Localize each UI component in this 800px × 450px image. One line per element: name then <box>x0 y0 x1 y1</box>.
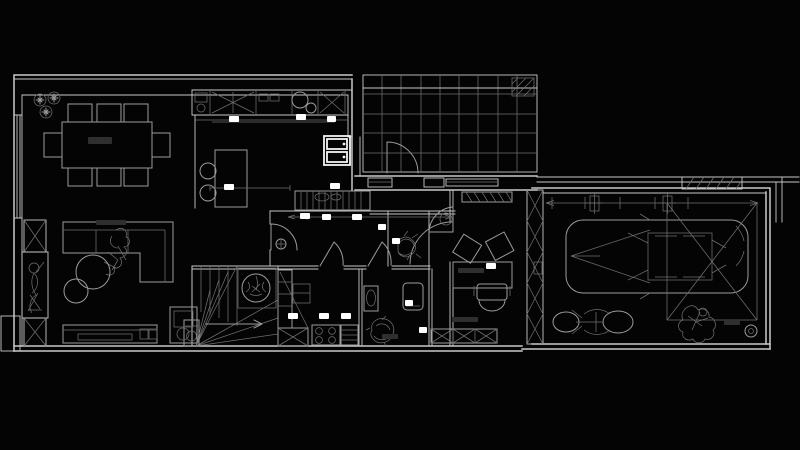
garage <box>532 177 770 349</box>
wardrobe-with-figure <box>22 252 48 318</box>
shelf-x-unit <box>278 328 308 346</box>
utility-room <box>278 270 358 346</box>
dining-table <box>62 122 152 168</box>
door-utility <box>320 242 343 266</box>
wc <box>398 207 453 260</box>
garage-window-hatched <box>682 177 742 189</box>
roof-overhang-lines <box>537 177 799 222</box>
cross-marked-zone <box>667 203 757 320</box>
cushion-right <box>485 232 513 260</box>
dining-area <box>34 92 170 186</box>
interior-walls <box>192 190 455 346</box>
sofa <box>63 222 173 282</box>
floor-plan-canvas <box>0 0 800 450</box>
wc-toilet-sketch <box>398 231 421 260</box>
living-room <box>22 220 197 346</box>
window-left <box>14 115 22 218</box>
radiator-bottom <box>431 329 497 343</box>
kitchen <box>192 90 370 210</box>
shower-tray <box>403 283 423 310</box>
hatched-corner <box>512 78 534 96</box>
toilet-sketch <box>366 316 394 346</box>
floor-drain <box>745 325 757 337</box>
staircase <box>184 266 278 346</box>
garage-figure-sketch <box>679 306 716 343</box>
insulated-wall-strip <box>527 190 543 344</box>
stove-icon <box>312 325 340 345</box>
radiator-top <box>462 192 512 202</box>
wall-column-lower <box>24 318 46 346</box>
cushion-left <box>453 234 482 263</box>
dining-chairs <box>44 104 170 186</box>
terrace-door <box>387 142 418 173</box>
tv-console <box>63 325 157 343</box>
terrace-grid <box>363 75 537 172</box>
garage-dimension-arrows <box>546 192 758 214</box>
kitchen-island <box>200 150 247 207</box>
bathroom <box>364 283 423 346</box>
coffee-tables <box>64 255 110 303</box>
sofa-figure-sketch <box>104 228 130 275</box>
stair-plant-icon <box>242 274 270 302</box>
kitchen-dimension-line <box>210 122 335 191</box>
drawer-counter <box>295 191 370 210</box>
floor-plan-drawing <box>0 0 800 450</box>
hall-dimension-line <box>288 214 452 220</box>
terrace <box>363 75 537 173</box>
wall-column-upper <box>24 220 46 252</box>
door-living-hall <box>271 224 297 250</box>
refrigerator-icon <box>324 136 350 165</box>
washbasin-icon <box>364 286 378 311</box>
drawer-unit <box>341 325 358 345</box>
south-wall-windows <box>355 176 537 190</box>
hallway <box>288 214 452 220</box>
car-top-view <box>566 214 748 299</box>
motorcycle-icon <box>553 310 633 335</box>
wall-cabinet-run <box>192 90 352 115</box>
door-wc <box>410 222 452 264</box>
plant-icon <box>34 92 60 118</box>
stair-direction-arrow <box>206 320 262 328</box>
